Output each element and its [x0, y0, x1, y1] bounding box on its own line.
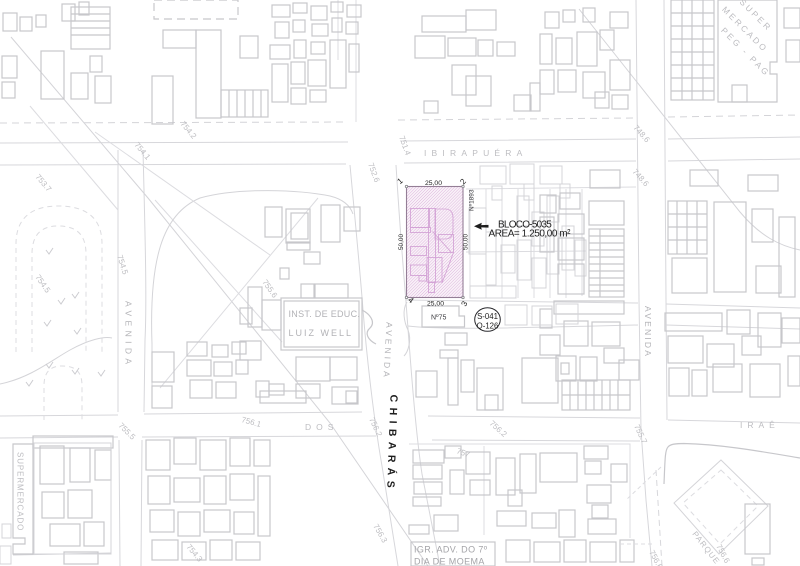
svg-text:IBIRAPUÉRA: IBIRAPUÉRA [424, 148, 528, 158]
svg-text:DIA DE MOEMA: DIA DE MOEMA [414, 557, 485, 566]
svg-text:50,00: 50,00 [463, 234, 470, 250]
svg-text:S-041: S-041 [477, 312, 498, 321]
svg-text:INST. DE EDUC.: INST. DE EDUC. [289, 309, 361, 319]
svg-text:SUPERMERCADO: SUPERMERCADO [16, 452, 25, 531]
svg-text:AREA= 1.250,00 m²: AREA= 1.250,00 m² [489, 229, 572, 240]
svg-text:LUIZ WELL: LUIZ WELL [289, 328, 354, 338]
svg-text:Nº1893: Nº1893 [469, 189, 476, 211]
svg-text:AVENIDA: AVENIDA [643, 306, 653, 358]
svg-text:AVENIDA: AVENIDA [124, 301, 134, 369]
svg-text:50,00: 50,00 [398, 234, 405, 250]
svg-text:IRAÊ: IRAÊ [740, 420, 780, 430]
svg-text:Q-126: Q-126 [477, 322, 499, 331]
svg-text:IGR. ADV. DO 7º: IGR. ADV. DO 7º [414, 545, 488, 555]
svg-text:25,00: 25,00 [427, 300, 444, 307]
svg-text:Nº75: Nº75 [431, 315, 447, 322]
svg-text:DOS: DOS [305, 422, 338, 432]
svg-text:25,00: 25,00 [425, 180, 442, 187]
